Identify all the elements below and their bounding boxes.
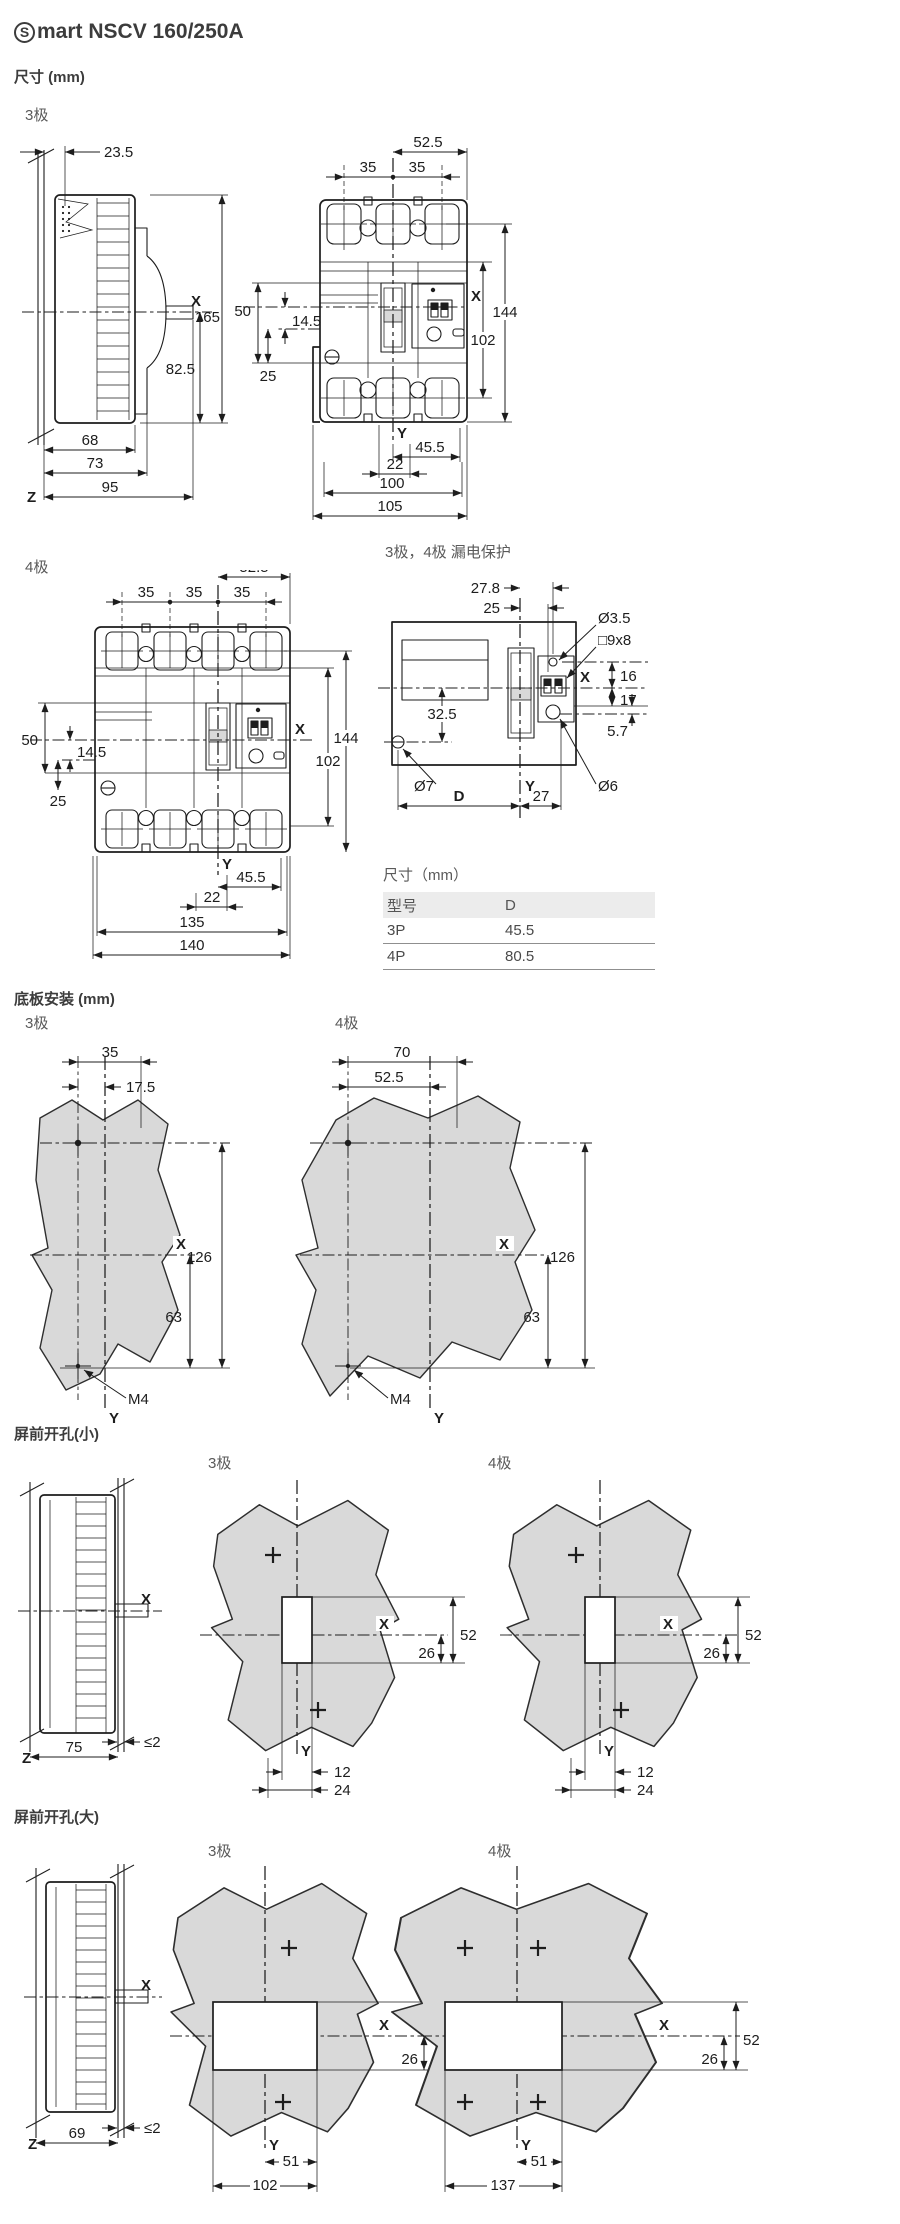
dim-label: 25	[483, 600, 500, 617]
dim-label: 165	[195, 309, 220, 326]
cell-d-3p: 45.5	[505, 922, 534, 939]
dim-label: 22	[204, 889, 221, 906]
dim-label: ≤2	[144, 2120, 161, 2137]
large-cutout-4pole-panel: X 52 26 Y 51 137	[392, 1866, 760, 2194]
dim-label: 17	[620, 692, 637, 709]
callout-slot-9x8: □9x8	[598, 632, 631, 649]
dim-label: 35	[102, 1044, 119, 1061]
dim-label: 25	[260, 368, 277, 385]
callout-m4: M4	[390, 1391, 411, 1408]
datasheet-page: S mart NSCV 160/250A 尺寸 (mm) 3极 4极 3极，4极…	[0, 0, 900, 2224]
dim-label: 35	[138, 584, 155, 601]
dim-label: 5.7	[607, 723, 628, 740]
large-cutout-side-view: X ≤2 Z 69	[24, 1864, 162, 2153]
label-base-4pole: 4极	[335, 1012, 358, 1033]
drawing-small-cutout: X ≤2 Z 75 X 52 26 Y 12 24	[0, 1455, 900, 1805]
dim-label: 51	[531, 2153, 548, 2170]
axis-x-label: X	[580, 669, 590, 686]
dim-label: 35	[186, 584, 203, 601]
dim-label: 52.5	[374, 1069, 403, 1086]
dim-label: 12	[334, 1764, 351, 1781]
base-mount-4pole: X 70 52.5 126 63 M4 Y	[296, 1044, 595, 1427]
dim-label: 35	[360, 159, 377, 176]
dim-label: 105	[377, 498, 402, 515]
dim-label: 100	[379, 475, 404, 492]
dim-label: 16	[620, 668, 637, 685]
dim-label: 35	[234, 584, 251, 601]
axis-x-label: X	[499, 1236, 509, 1253]
dim-label: 52.5	[413, 134, 442, 151]
axis-y-label: Y	[604, 1743, 614, 1760]
callout-hole-7: Ø7	[414, 778, 434, 795]
dim-label: 63	[523, 1309, 540, 1326]
callout-hole-3_5: Ø3.5	[598, 610, 631, 627]
dim-label: 70	[394, 1044, 411, 1061]
table-col-model: 型号	[383, 895, 505, 916]
axis-x-label: X	[191, 293, 201, 310]
dim-label: 12	[637, 1764, 654, 1781]
page-title-text: mart NSCV 160/250A	[37, 20, 244, 44]
dim-label: 140	[179, 937, 204, 954]
dim-label: 51	[283, 2153, 300, 2170]
axis-y-label: Y	[301, 1743, 311, 1760]
front-view-3pole: X 52.5 35 35 50 14.5 25 144 102	[234, 134, 519, 520]
small-cutout-4pole-panel: X 52 26 Y 12 24	[500, 1480, 762, 1799]
dim-label: 52	[745, 1627, 762, 1644]
side-view-3pole: 23.5 X 165 82.5 68 73 Z 9	[20, 144, 228, 506]
dim-label: 26	[401, 2051, 418, 2068]
axis-y-label: Y	[434, 1410, 444, 1427]
dim-label: ≤2	[144, 1734, 161, 1751]
base-mount-3pole: X 35 17.5 126 63 M4 Y	[30, 1044, 230, 1427]
axis-y-label: Y	[109, 1410, 119, 1427]
dim-label: 35	[409, 159, 426, 176]
dim-label: 14.5	[77, 744, 106, 761]
dim-label: D	[454, 788, 465, 805]
dim-label: 26	[418, 1645, 435, 1662]
dim-label: 126	[187, 1249, 212, 1266]
dim-label: 27.8	[471, 580, 500, 597]
dim-label: 73	[87, 455, 104, 472]
small-cutout-3pole-panel: X 52 26 Y 12 24	[200, 1480, 477, 1799]
axis-y-label: Y	[222, 856, 232, 873]
axis-x-label: X	[471, 288, 481, 305]
dim-label: 137	[490, 2177, 515, 2194]
dim-label: 24	[334, 1782, 351, 1799]
dim-label: 23.5	[104, 144, 133, 161]
cell-model-4p: 4P	[383, 948, 505, 965]
label-base-3pole: 3极	[25, 1012, 48, 1033]
drawing-large-cutout: X ≤2 Z 69 X 52 26 Y 51 102	[0, 1845, 900, 2224]
dim-label: 25	[50, 793, 67, 810]
label-leakage: 3极，4极 漏电保护	[385, 541, 511, 562]
axis-z-label: Z	[27, 489, 36, 506]
drawing-base-mounting: X 35 17.5 126 63 M4 Y X 70	[0, 1040, 900, 1435]
dim-label: 45.5	[415, 439, 444, 456]
dim-label: 69	[69, 2125, 86, 2142]
dim-label: 22	[387, 456, 404, 473]
page-title: S mart NSCV 160/250A	[14, 20, 244, 44]
cell-d-4p: 80.5	[505, 948, 534, 965]
dim-label: 144	[333, 730, 358, 747]
dim-label: 24	[637, 1782, 654, 1799]
axis-z-label: Z	[28, 2136, 37, 2153]
dim-label: 102	[470, 332, 495, 349]
dim-label: 17.5	[126, 1079, 155, 1096]
dim-label: 126	[550, 1249, 575, 1266]
dim-label: 63	[165, 1309, 182, 1326]
dim-label: 52	[743, 2032, 760, 2049]
section-dimensions-title: 尺寸 (mm)	[14, 66, 85, 87]
table-header-row: 型号 D	[383, 892, 655, 918]
dim-label: 102	[252, 2177, 277, 2194]
dim-label: 102	[315, 753, 340, 770]
axis-x-label: X	[379, 1616, 389, 1633]
dim-label: 14.5	[292, 313, 321, 330]
dim-label: 27	[533, 788, 550, 805]
axis-y-label: Y	[521, 2137, 531, 2154]
dim-label: 50	[21, 732, 38, 749]
dim-label: 32.5	[427, 706, 456, 723]
table-col-d: D	[505, 897, 516, 914]
section-large-cutout-title: 屏前开孔(大)	[14, 1806, 99, 1827]
leakage-protection-view: X 27.8 25 Ø3.5 □9x8 16 17 5.7 32.5	[378, 580, 648, 818]
axis-z-label: Z	[22, 1750, 31, 1767]
axis-y-label: Y	[397, 425, 407, 442]
dim-label: 45.5	[236, 869, 265, 886]
axis-x-label: X	[176, 1236, 186, 1253]
dim-label: 95	[102, 479, 119, 496]
front-view-4pole: X 52.5 35 35 35 50 14.5 25 144 102	[21, 570, 360, 959]
table-title: 尺寸（mm）	[383, 864, 655, 885]
dim-label: 75	[66, 1739, 83, 1756]
axis-x-label: X	[295, 721, 305, 738]
drawing-3pole-dimensions: 23.5 X 165 82.5 68 73 Z 9	[0, 130, 900, 530]
dim-label: 52	[460, 1627, 477, 1644]
axis-x-label: X	[141, 1591, 151, 1608]
dim-label: 50	[234, 303, 251, 320]
small-cutout-side-view: X ≤2 Z 75	[18, 1478, 162, 1767]
label-3pole: 3极	[25, 104, 48, 125]
dim-label: 144	[492, 304, 517, 321]
table-row: 3P 45.5	[383, 918, 655, 944]
dim-label: 52.5	[239, 570, 268, 576]
callout-m4: M4	[128, 1391, 149, 1408]
table-row: 4P 80.5	[383, 944, 655, 970]
axis-x-label: X	[659, 2017, 669, 2034]
dim-label: 26	[701, 2051, 718, 2068]
dim-label: 26	[703, 1645, 720, 1662]
dim-label: 68	[82, 432, 99, 449]
axis-y-label: Y	[269, 2137, 279, 2154]
section-base-mount-title: 底板安装 (mm)	[14, 988, 115, 1009]
callout-hole-6: Ø6	[598, 778, 618, 795]
dim-label: 82.5	[166, 361, 195, 378]
dimension-table: 尺寸（mm） 型号 D 3P 45.5 4P 80.5	[383, 864, 655, 970]
cell-model-3p: 3P	[383, 922, 505, 939]
axis-x-label: X	[663, 1616, 673, 1633]
axis-x-label: X	[379, 2017, 389, 2034]
dim-label: 135	[179, 914, 204, 931]
axis-x-label: X	[141, 1977, 151, 1994]
brand-logo-icon: S	[14, 22, 35, 43]
